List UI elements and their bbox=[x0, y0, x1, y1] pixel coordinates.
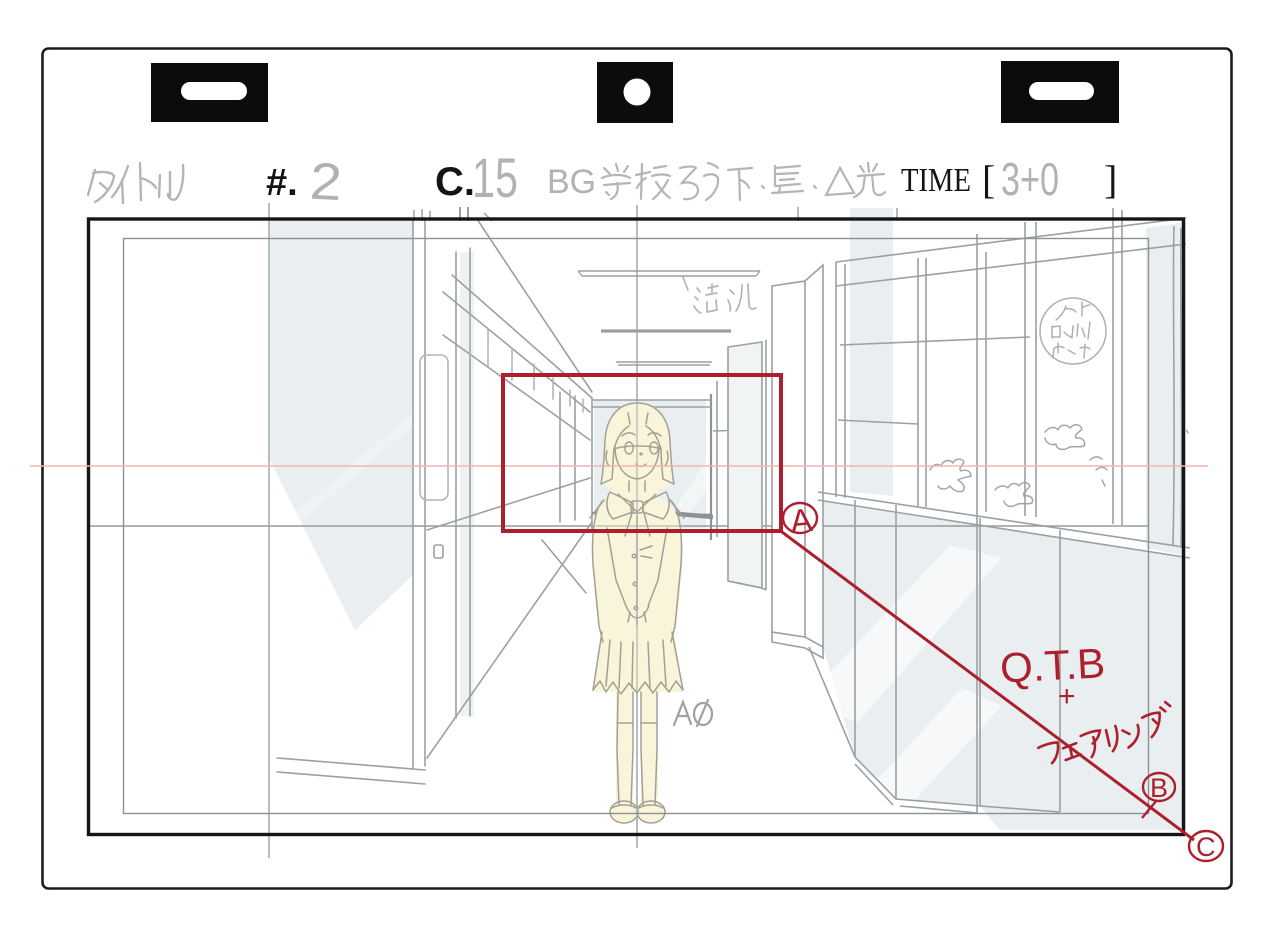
svg-text:Q.T.B: Q.T.B bbox=[999, 639, 1106, 691]
svg-text:TIME: TIME bbox=[901, 162, 971, 199]
svg-text:2: 2 bbox=[308, 153, 343, 213]
svg-text:+: + bbox=[1058, 680, 1076, 713]
svg-text:#.: #. bbox=[266, 162, 298, 204]
svg-text:C: C bbox=[1196, 832, 1216, 862]
svg-text:C.: C. bbox=[435, 160, 475, 204]
svg-text:3+0: 3+0 bbox=[1001, 153, 1059, 205]
svg-text:]: ] bbox=[1104, 157, 1117, 202]
svg-text:BG: BG bbox=[547, 163, 596, 201]
svg-text:15: 15 bbox=[472, 146, 518, 209]
svg-text:A: A bbox=[788, 501, 814, 540]
svg-text:[: [ bbox=[982, 157, 995, 202]
svg-text:B: B bbox=[1150, 773, 1168, 803]
